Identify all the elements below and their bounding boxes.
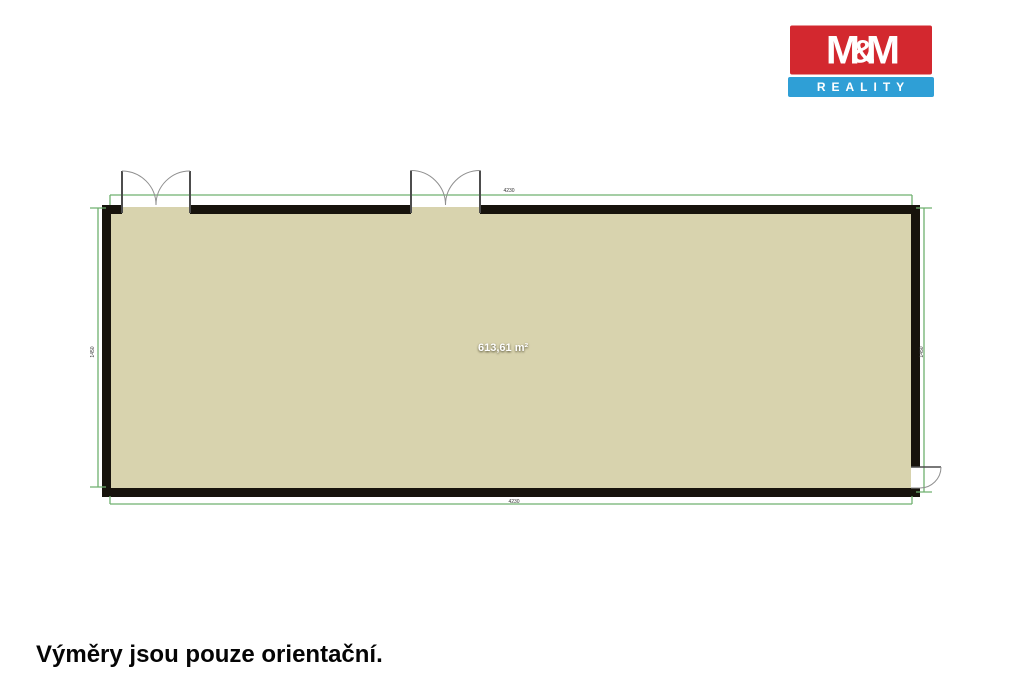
door-opening-center (411, 205, 480, 215)
door-opening-left (122, 205, 190, 215)
room-area-label: 613,61 m² (478, 342, 568, 354)
mm-reality-logo: M&M REALITY (788, 24, 934, 98)
dimension-line-top (110, 195, 912, 205)
logo-subtitle: REALITY (817, 80, 910, 94)
logo-red-box: M&M (790, 26, 932, 75)
dimension-label-left: 1450 (90, 346, 96, 357)
door-opening-right (911, 467, 920, 488)
disclaimer-text: Výměry jsou pouze orientační. (36, 641, 383, 669)
logo-title: M&M (826, 27, 896, 73)
floorplan-page: M&M REALITY 4230 4230 1450 1450 (0, 0, 1024, 683)
dimension-label-bottom: 4230 (508, 499, 519, 505)
ampersand-glyph: & (851, 33, 871, 69)
logo-blue-bar: REALITY (788, 77, 934, 97)
dimension-label-top: 4230 (503, 188, 514, 194)
dimension-line-bottom (110, 496, 912, 504)
